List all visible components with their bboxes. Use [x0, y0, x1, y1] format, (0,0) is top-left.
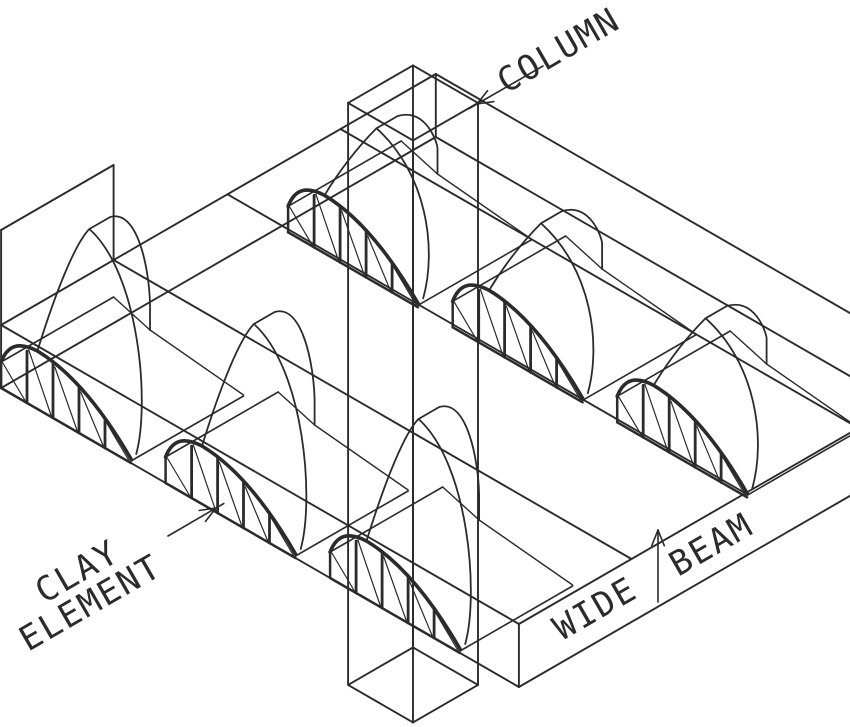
label-beam: BEAM — [663, 505, 761, 585]
floor-system-isometric-drawing: COLUMN CLAY ELEMENT WIDE BEAM — [0, 0, 850, 727]
label-wide: WIDE — [547, 569, 645, 649]
technical-drawing-canvas: COLUMN CLAY ELEMENT WIDE BEAM — [0, 0, 850, 727]
label-column: COLUMN — [491, 0, 628, 102]
column-wireframe — [348, 65, 478, 722]
